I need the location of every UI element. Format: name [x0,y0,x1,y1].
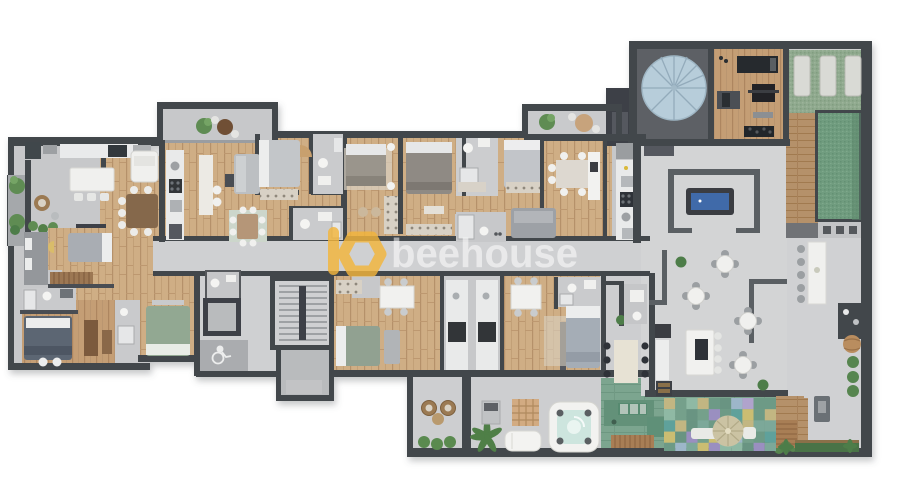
svg-text:beehouse: beehouse [391,230,578,276]
